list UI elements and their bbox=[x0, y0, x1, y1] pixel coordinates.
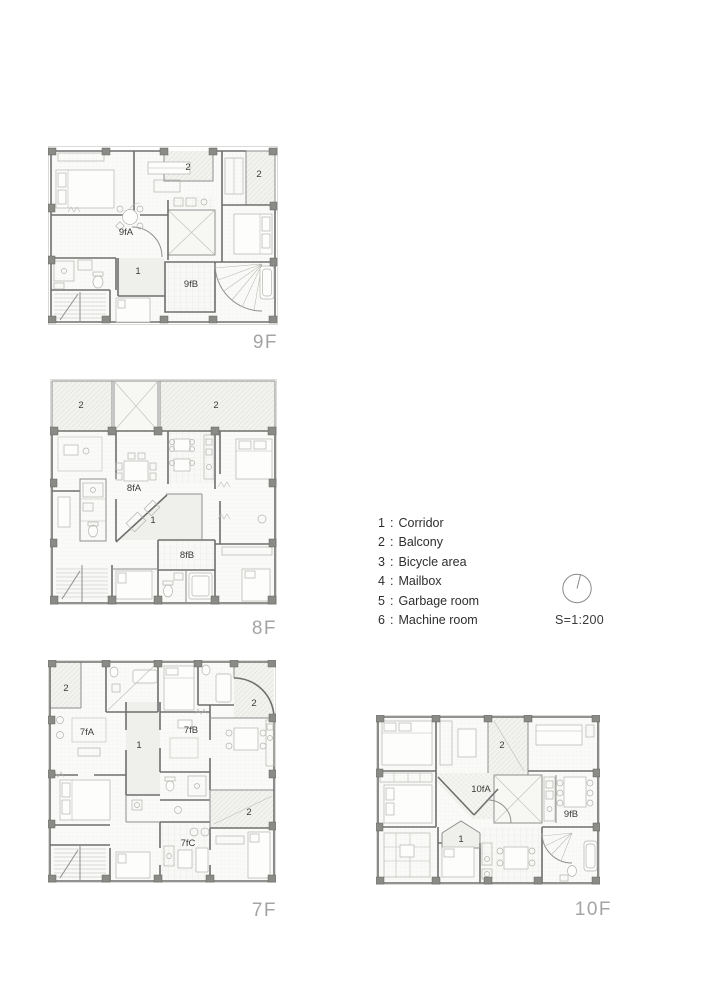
north-indicator-icon bbox=[559, 571, 595, 607]
architectural-drawing-sheet: 2 2 9fA 1 9fB 9F bbox=[0, 0, 707, 1000]
unit-label-10fa: 10fA bbox=[471, 784, 491, 795]
balcony-area bbox=[52, 381, 275, 431]
legend-separator: : bbox=[390, 555, 393, 569]
legend-item-number: 4 bbox=[377, 574, 386, 588]
bed bbox=[164, 666, 194, 710]
unit-label-8fb: 8fB bbox=[180, 550, 194, 561]
legend-item-label: Bicycle area bbox=[398, 555, 466, 569]
floor-title-8f: 8F bbox=[50, 618, 277, 640]
corridor-label: 1 bbox=[458, 834, 463, 845]
bed bbox=[234, 214, 272, 254]
legend-item: 1 : Corridor bbox=[377, 516, 479, 535]
scale-label: S=1:200 bbox=[555, 613, 604, 627]
legend: 1 : Corridor 2 : Balcony 3 : Bicycle are… bbox=[377, 516, 479, 632]
unit-label-7fb: 7fB bbox=[184, 725, 198, 736]
legend-item-label: Machine room bbox=[398, 613, 477, 627]
balcony-label: 2 bbox=[246, 807, 251, 818]
floor-title-10f: 10F bbox=[376, 899, 612, 921]
legend-item: 3 : Bicycle area bbox=[377, 555, 479, 574]
unit-label-8fa: 8fA bbox=[127, 483, 142, 494]
corridor-floor bbox=[118, 258, 164, 296]
corridor-floor bbox=[126, 702, 160, 795]
unit-label-7fc: 7fC bbox=[181, 838, 196, 849]
balcony-label: 2 bbox=[256, 169, 261, 180]
balcony-label: 2 bbox=[185, 162, 190, 173]
floor-plan-8f-drawing: 2 2 8fA 1 8fB bbox=[50, 379, 277, 605]
legend-item-label: Balcony bbox=[398, 535, 442, 549]
legend-item-number: 3 bbox=[377, 555, 386, 569]
corridor-label: 1 bbox=[136, 740, 141, 751]
bathtub bbox=[260, 266, 274, 299]
unit-label-9fb: 9fB bbox=[184, 279, 198, 290]
legend-item-number: 6 bbox=[377, 613, 386, 627]
unit-label-7fa: 7fA bbox=[80, 727, 95, 738]
balcony-area bbox=[488, 717, 528, 779]
legend-item-number: 5 bbox=[377, 594, 386, 608]
bed bbox=[384, 785, 432, 823]
balcony-label: 2 bbox=[499, 740, 504, 751]
legend-item-label: Garbage room bbox=[398, 594, 479, 608]
floor-plan-10f-drawing: 2 10fA 9fB 1 bbox=[376, 715, 600, 885]
floor-title-9f: 9F bbox=[48, 332, 278, 354]
legend-separator: : bbox=[390, 613, 393, 627]
bed bbox=[116, 298, 150, 322]
balcony-label: 2 bbox=[213, 400, 218, 411]
legend-item: 2 : Balcony bbox=[377, 535, 479, 554]
legend-item: 6 : Machine room bbox=[377, 613, 479, 632]
floor-title-7f: 7F bbox=[48, 900, 277, 922]
balcony-label: 2 bbox=[251, 698, 256, 709]
unit-label-9fb: 9fB bbox=[564, 809, 578, 820]
legend-separator: : bbox=[390, 594, 393, 608]
bed bbox=[382, 721, 432, 765]
bed bbox=[442, 847, 474, 877]
legend-item-number: 2 bbox=[377, 535, 386, 549]
legend-item-number: 1 bbox=[377, 516, 386, 530]
elevator-shaft bbox=[114, 381, 158, 431]
legend-separator: : bbox=[390, 516, 393, 530]
legend-item-label: Mailbox bbox=[398, 574, 441, 588]
corridor-label: 1 bbox=[150, 515, 155, 526]
bed bbox=[236, 439, 272, 479]
balcony-label: 2 bbox=[78, 400, 83, 411]
floor-plan-9f-drawing: 2 2 9fA 1 9fB bbox=[48, 146, 278, 325]
bed bbox=[116, 571, 152, 599]
legend-item: 5 : Garbage room bbox=[377, 594, 479, 613]
elevator-shaft bbox=[494, 775, 542, 823]
floor-plan-7f-drawing: 2 2 2 7fA 1 7fB 7fC bbox=[48, 660, 276, 883]
legend-item-label: Corridor bbox=[398, 516, 443, 530]
bed bbox=[116, 852, 150, 878]
legend-item: 4 : Mailbox bbox=[377, 574, 479, 593]
bed bbox=[56, 170, 114, 212]
corridor-label: 1 bbox=[135, 266, 140, 277]
unit-label-9fa: 9fA bbox=[119, 227, 134, 238]
legend-separator: : bbox=[390, 535, 393, 549]
legend-separator: : bbox=[390, 574, 393, 588]
elevator-shaft bbox=[168, 210, 215, 255]
balcony-label: 2 bbox=[63, 683, 68, 694]
